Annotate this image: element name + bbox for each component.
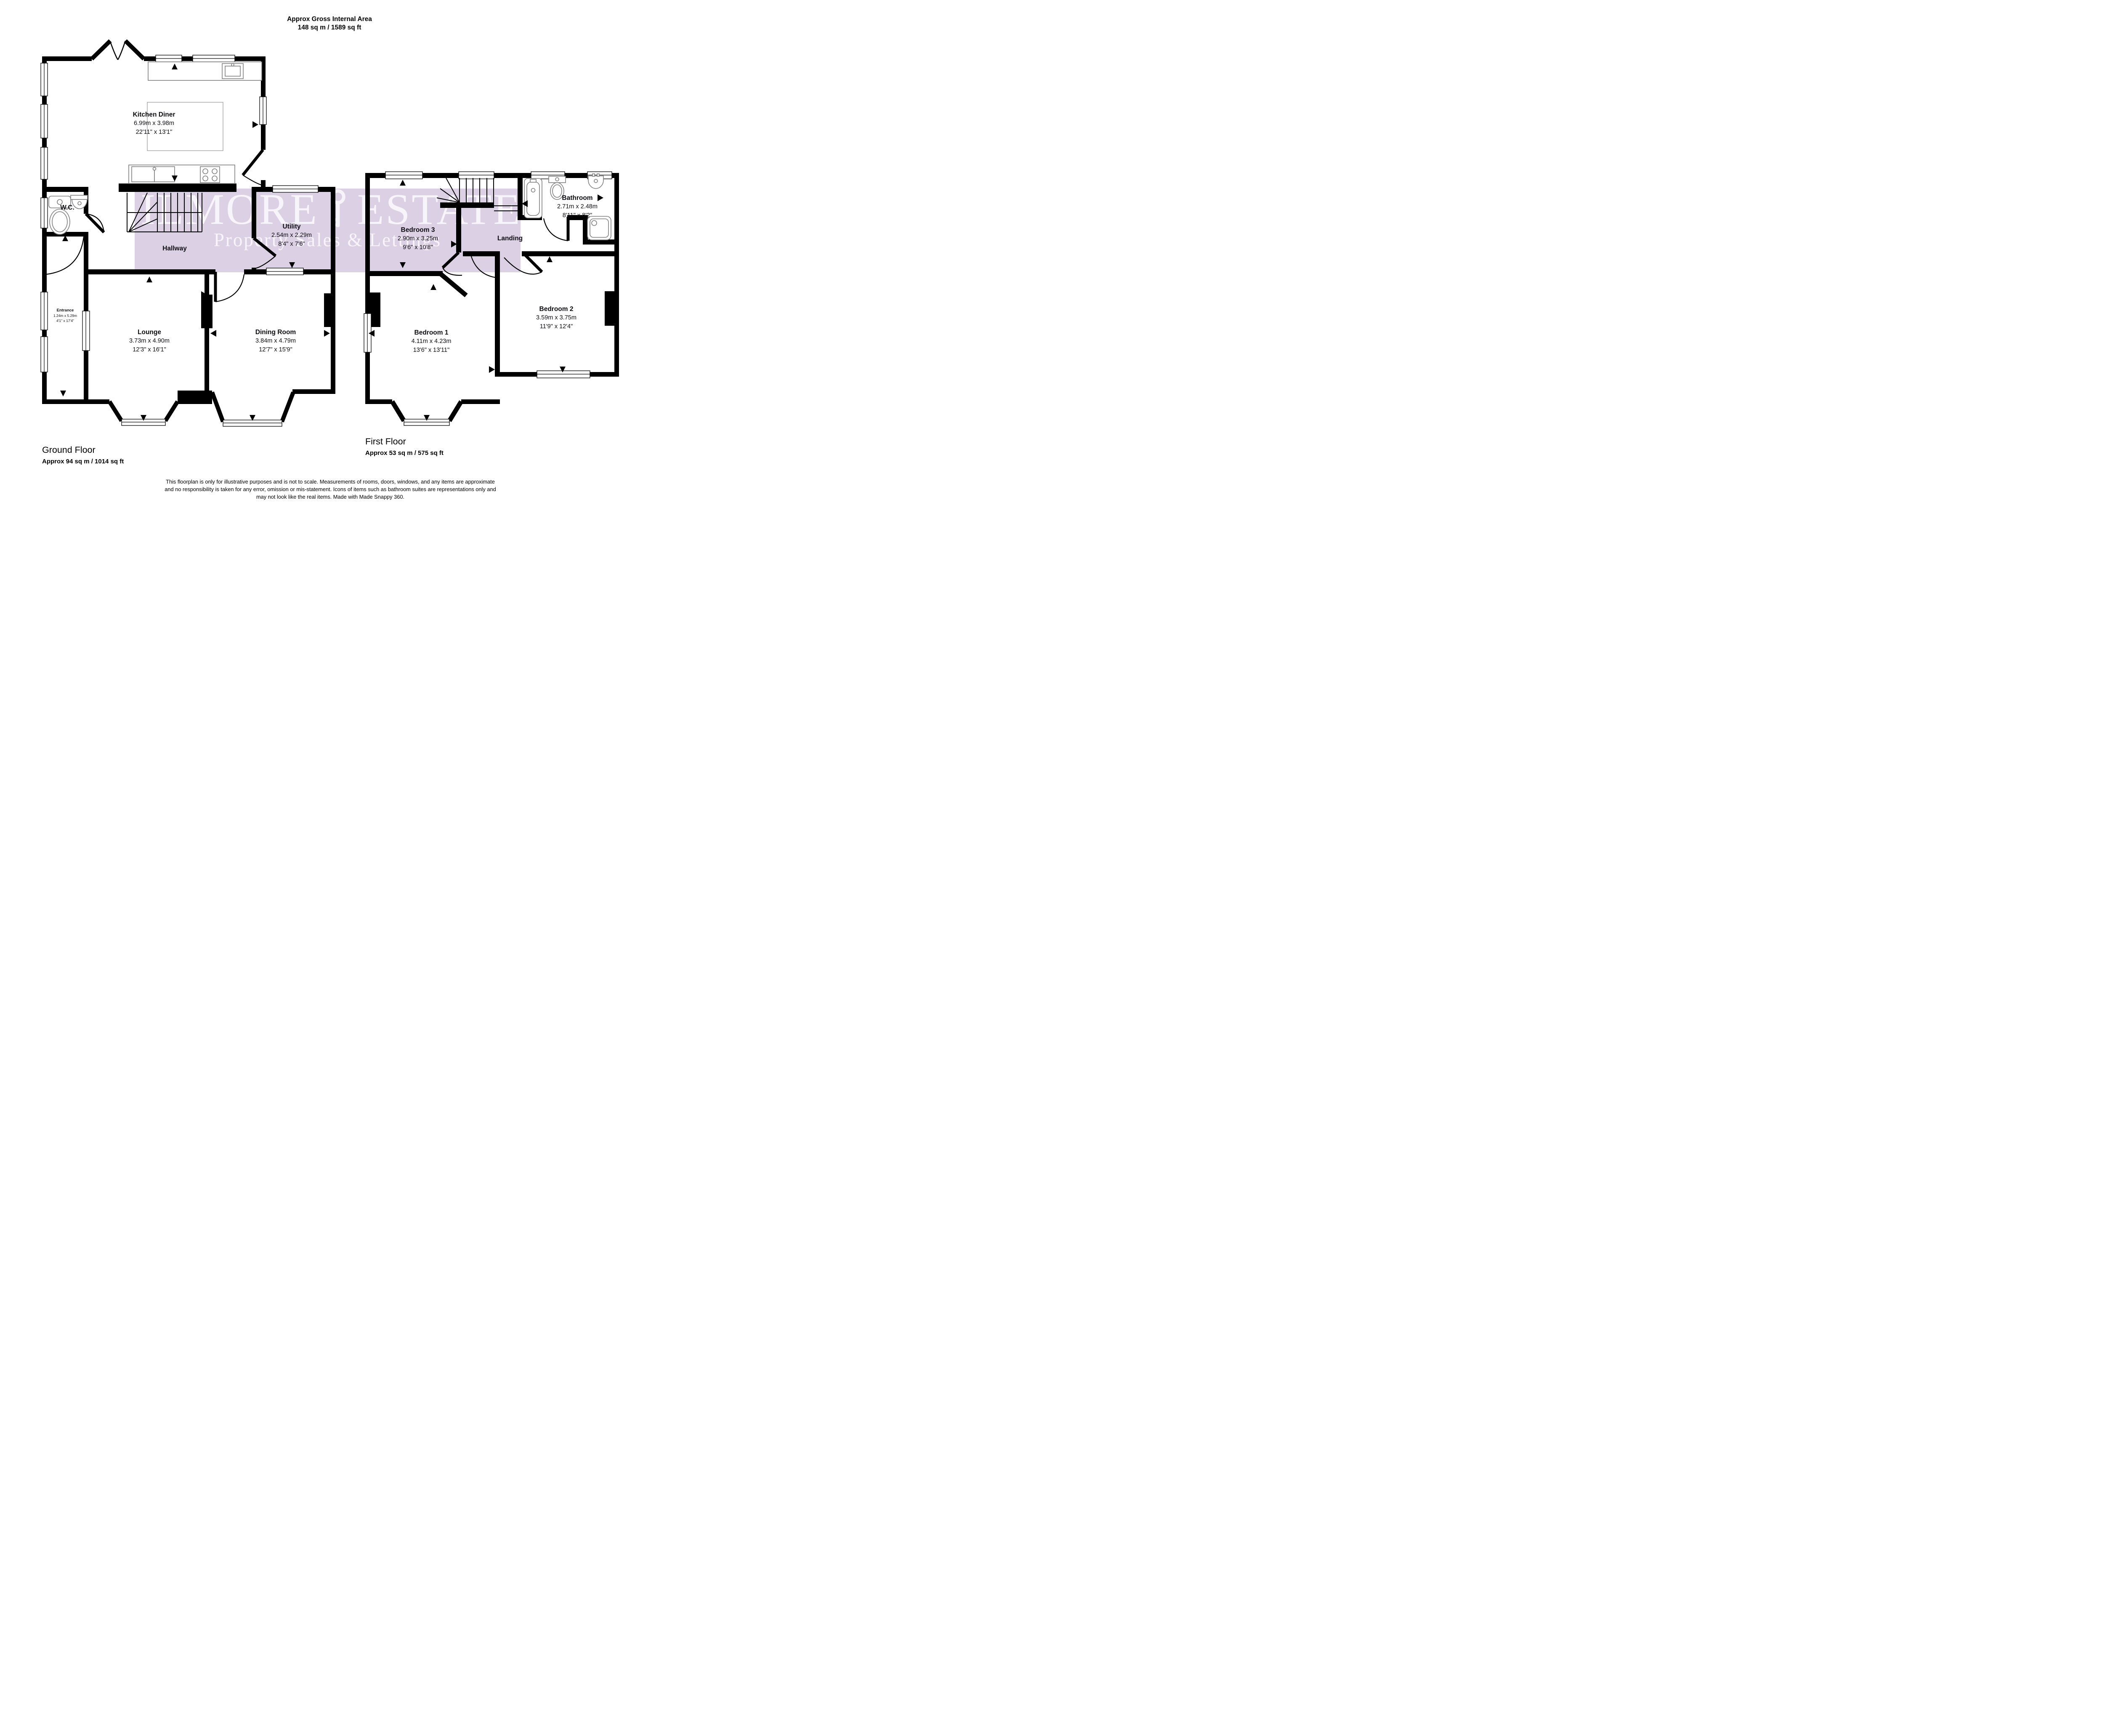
title-line-1: Approx Gross Internal Area [224,15,435,24]
room-label-bedroom-2: Bedroom 2 3.59m x 3.75m 11'9" x 12'4" [536,305,576,331]
disclaimer-text: This floorplan is only for illustrative … [140,478,521,501]
room-label-wc: W.C. [60,203,74,212]
disclaimer-line-2: and no responsibility is taken for any e… [140,486,521,493]
room-label-landing: Landing [497,234,523,243]
disclaimer-line-3: may not look like the real items. Made w… [140,493,521,501]
ground-floor-stairs [127,193,202,232]
room-label-utility: Utility 2.54m x 2.29m 8'4" x 7'6" [271,222,312,249]
french-door-swing-arcs [110,41,125,60]
room-label-hallway: Hallway [162,244,187,253]
floorplan-page: Approx Gross Internal Area 148 sq m / 15… [0,0,650,502]
disclaimer-line-1: This floorplan is only for illustrative … [140,478,521,486]
room-label-entrance: Entrance 1.24m x 5.29m 4'1" x 17'4" [53,308,77,323]
title-line-2: 148 sq m / 1589 sq ft [224,24,435,32]
room-label-bathroom: Bathroom 2.71m x 2.48m 8'11" x 8'2" [557,194,598,220]
ground-floor-title: Ground Floor [42,444,96,455]
room-label-bedroom-3: Bedroom 3 2.90m x 3.25m 9'6" x 10'8" [398,226,438,252]
wc-fixtures [49,195,88,234]
room-label-bedroom-1: Bedroom 1 4.11m x 4.23m 13'6" x 13'11" [412,328,452,355]
first-floor-title: First Floor [365,436,406,447]
room-label-dining-room: Dining Room 3.84m x 4.79m 12'7" x 15'9" [255,328,296,354]
gross-internal-area-title: Approx Gross Internal Area 148 sq m / 15… [224,15,435,32]
room-label-kitchen-diner: Kitchen Diner 6.99m x 3.98m 22'11" x 13'… [133,110,175,137]
ground-floor-area: Approx 94 sq m / 1014 sq ft [42,458,124,465]
first-floor-area: Approx 53 sq m / 575 sq ft [365,449,444,457]
floorplan-canvas [0,0,650,502]
first-floor-doors [443,217,568,278]
room-label-lounge: Lounge 3.73m x 4.90m 12'3" x 16'1" [129,328,170,354]
